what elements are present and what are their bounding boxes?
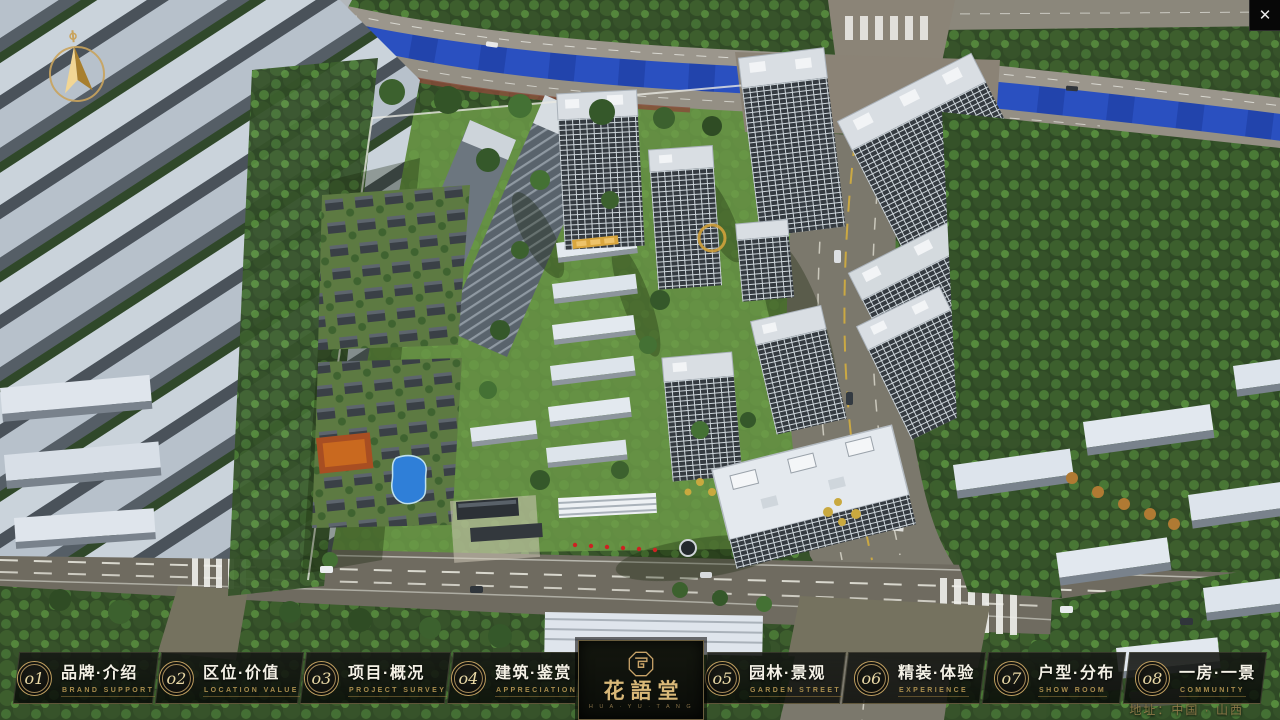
nav-number-badge: o1 xyxy=(17,661,52,696)
nav-item-brand[interactable]: o1 品牌·介绍 BRAND SUPPORT xyxy=(13,652,160,704)
nav-subtitle: BRAND SUPPORT xyxy=(61,685,155,697)
nav-subtitle: APPRECIATION xyxy=(495,685,578,697)
brand-tagline: H U A · Y U · T A N G xyxy=(589,704,693,710)
nav-item-floorplan[interactable]: o7 户型·分布 SHOW ROOM xyxy=(982,652,1127,704)
nav-number-badge: o5 xyxy=(705,661,740,696)
close-button[interactable]: ✕ xyxy=(1249,0,1280,31)
nav-title: 户型·分布 xyxy=(1038,659,1115,683)
nav-number-badge: o4 xyxy=(451,661,486,696)
nav-number-badge: o2 xyxy=(159,661,194,696)
nav-subtitle: GARDEN STREET xyxy=(749,685,842,697)
nav-subtitle: COMMUNITY xyxy=(1178,685,1245,697)
nav-item-project[interactable]: o3 项目·概况 PROJECT SURVEY xyxy=(300,652,452,704)
nav-title: 精装·体验 xyxy=(898,659,975,683)
nav-subtitle: SHOW ROOM xyxy=(1038,685,1107,697)
nav-title: 建筑·鉴赏 xyxy=(495,659,572,683)
nav-number-badge: o3 xyxy=(304,661,339,696)
nav-number-badge: o6 xyxy=(854,661,889,696)
nav-title: 园林·景观 xyxy=(749,659,826,683)
slabs-bottom-left xyxy=(0,375,161,549)
nav-title: 区位·价值 xyxy=(203,659,280,683)
nav-item-view[interactable]: o8 一房·一景 COMMUNITY xyxy=(1122,652,1267,704)
close-icon: ✕ xyxy=(1259,6,1272,24)
nav-item-interior[interactable]: o6 精装·体验 EXPERIENCE xyxy=(842,652,987,704)
nav-title: 项目·概况 xyxy=(348,659,425,683)
nav-item-location[interactable]: o2 区位·价值 LOCATION VALUE xyxy=(155,652,304,704)
road-top-right xyxy=(930,0,1280,30)
north-compass-icon xyxy=(40,26,114,112)
nav-subtitle: LOCATION VALUE xyxy=(203,685,300,697)
nav-title: 一房·一景 xyxy=(1178,659,1255,683)
nav-group-right: o5 园林·景观 GARDEN STREET o6 精装·体验 EXPERIEN… xyxy=(704,652,1264,704)
nav-title: 品牌·介绍 xyxy=(61,659,138,683)
nav-item-architecture[interactable]: o4 建筑·鉴赏 APPRECIATION xyxy=(447,652,583,704)
brand-logo-panel[interactable]: 花語堂 H U A · Y U · T A N G xyxy=(578,640,704,720)
nav-number-badge: o8 xyxy=(1134,661,1169,696)
brand-name: 花語堂 xyxy=(598,680,685,701)
sales-presentation-screen: ✕ o1 品牌·介绍 BRAND SUPPORT o2 区位·价值 LOCATI… xyxy=(0,0,1280,720)
brand-seal-icon xyxy=(628,651,654,677)
nav-item-garden[interactable]: o5 园林·景观 GARDEN STREET xyxy=(701,652,846,704)
masterplan-3d-view[interactable] xyxy=(0,0,1280,720)
nav-subtitle: EXPERIENCE xyxy=(898,685,969,697)
nav-number-badge: o7 xyxy=(994,661,1029,696)
nav-group-left: o1 品牌·介绍 BRAND SUPPORT o2 区位·价值 LOCATION… xyxy=(16,652,576,704)
nav-subtitle: PROJECT SURVEY xyxy=(348,685,447,697)
project-address: 地址：中国 · 山西 xyxy=(1129,701,1244,718)
